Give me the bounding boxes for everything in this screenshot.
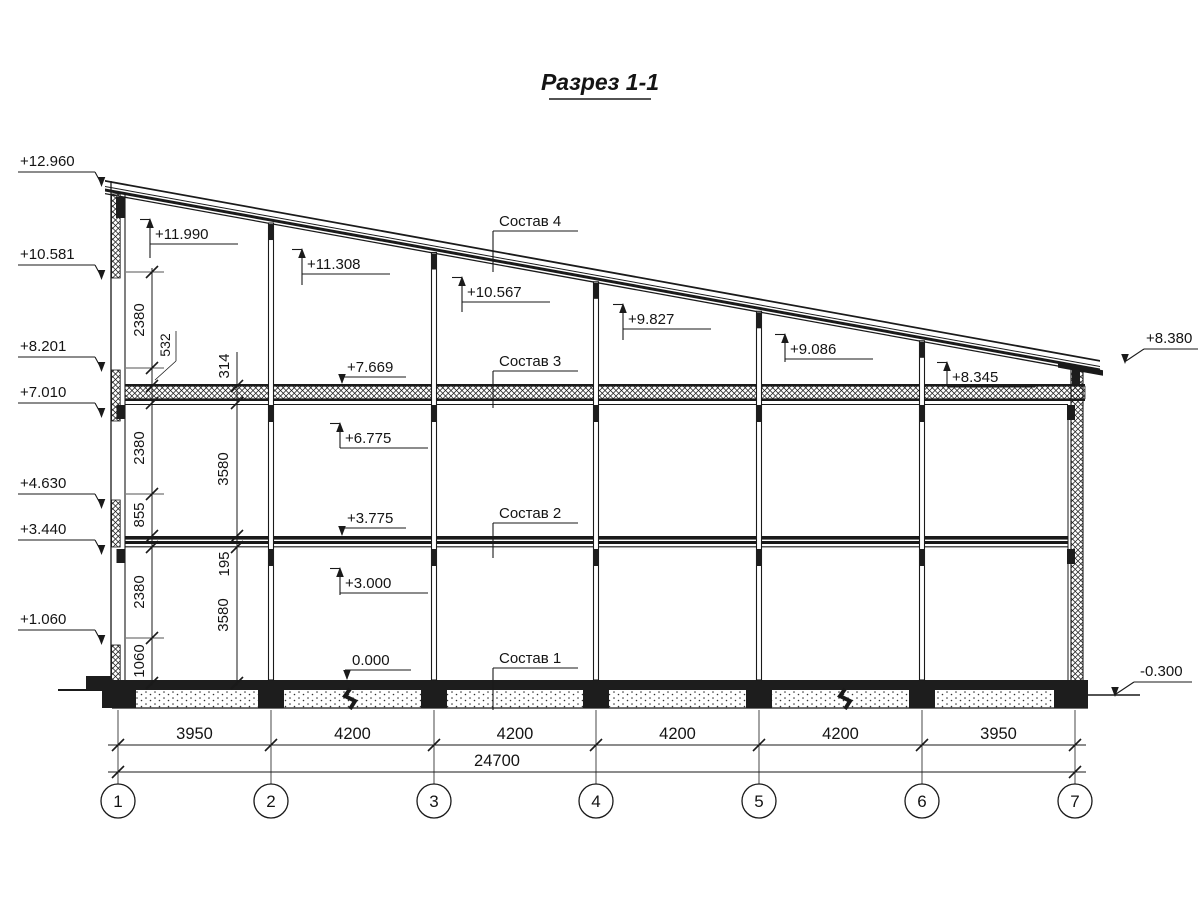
composition-label: Состав 3 [499, 353, 561, 370]
span-dim-value: 4200 [334, 725, 371, 743]
right-wall-connector [1067, 405, 1075, 420]
column-foundation-block [258, 690, 284, 708]
axis-number: 3 [429, 792, 438, 811]
column-foundation-block [909, 690, 935, 708]
column-roof-connector [919, 342, 925, 358]
elevation-value-left: +10.581 [20, 246, 75, 263]
vertical-dim-value: 195 [216, 551, 233, 576]
column-middle-floor-connector [268, 549, 274, 566]
span-dim-value: 4200 [659, 725, 696, 743]
foundation-left-wall [102, 690, 136, 708]
total-dim-value: 24700 [474, 752, 520, 770]
left-wall-hatch-segment [112, 500, 121, 547]
elevation-value-interior: +8.345 [952, 369, 998, 386]
axis-number: 7 [1070, 792, 1079, 811]
left-wall-cap-plate [116, 197, 125, 218]
elevation-value-left: +3.440 [20, 521, 66, 538]
column-middle-floor-connector [756, 549, 762, 566]
column-roof-connector [756, 312, 762, 328]
composition-label: Состав 1 [499, 650, 561, 667]
right-wall-connector [1067, 549, 1075, 564]
vertical-dim-value: 3580 [215, 598, 232, 631]
elevation-value-right: -0.300 [1140, 663, 1183, 680]
vertical-dim-value: 2380 [131, 575, 148, 608]
elevation-value-interior: +11.990 [155, 226, 209, 243]
column-roof-connector [431, 254, 437, 270]
column-middle-floor-connector [919, 549, 925, 566]
elevation-value-left: +12.960 [20, 153, 75, 170]
left-wall-connector [117, 405, 125, 419]
column-upper-floor-connector [756, 405, 762, 422]
column-foundation-block [421, 690, 447, 708]
column-roof-connector [268, 224, 274, 240]
axis-number: 6 [917, 792, 926, 811]
column-middle-floor-connector [431, 549, 437, 566]
left-apron-block [86, 676, 112, 690]
elevation-value-interior: +11.308 [307, 256, 361, 273]
page-title: Разрез 1-1 [541, 69, 659, 95]
column-roof-connector [593, 283, 599, 299]
elevation-value-interior: +6.775 [345, 430, 391, 447]
span-dim-value: 4200 [822, 725, 859, 743]
column-middle-floor-connector [593, 549, 599, 566]
column [432, 253, 437, 680]
axis-number: 2 [266, 792, 275, 811]
composition-label: Состав 4 [499, 213, 561, 230]
composition-label: Состав 2 [499, 505, 561, 522]
elevation-value-interior: +9.086 [790, 341, 836, 358]
column-foundation-block [746, 690, 772, 708]
vertical-dim-value: 2380 [131, 303, 148, 336]
elevation-value-left: +7.010 [20, 384, 66, 401]
column-upper-floor-connector [919, 405, 925, 422]
column-upper-floor-connector [431, 405, 437, 422]
slab-top-band [104, 680, 1088, 690]
column-upper-floor-connector [593, 405, 599, 422]
section-drawing: Разрез 1-1 [0, 0, 1200, 900]
paper-background [0, 0, 1200, 900]
left-wall-hatch-segment [112, 645, 121, 686]
elevation-value-left: +8.201 [20, 338, 66, 355]
axis-number: 1 [113, 792, 122, 811]
span-dim-value: 3950 [176, 725, 213, 743]
span-dim-value: 3950 [980, 725, 1017, 743]
elevation-value-right: +8.380 [1146, 330, 1192, 347]
elevation-value-left: +1.060 [20, 611, 66, 628]
vertical-dim-value: 314 [216, 353, 233, 378]
elevation-value-interior: 0.000 [352, 652, 390, 669]
vertical-dim-value: 3580 [215, 452, 232, 485]
vertical-dim-value: 532 [157, 333, 173, 357]
right-wall-connector [1072, 370, 1080, 386]
vertical-dim-value: 1060 [131, 644, 148, 677]
column-foundation-block [583, 690, 609, 708]
elevation-value-interior: +3.775 [347, 510, 393, 527]
elevation-value-interior: +9.827 [628, 311, 674, 328]
left-wall-connector [117, 549, 125, 563]
vertical-dim-value: 2380 [131, 431, 148, 464]
column [757, 311, 762, 680]
column-upper-floor-connector [268, 405, 274, 422]
vertical-dim-value: 855 [131, 502, 148, 527]
axis-number: 5 [754, 792, 763, 811]
elevation-value-interior: +3.000 [345, 575, 391, 592]
column [269, 223, 274, 680]
elevation-value-interior: +7.669 [347, 359, 393, 376]
column [594, 282, 599, 680]
axis-number: 4 [591, 792, 600, 811]
span-dim-value: 4200 [497, 725, 534, 743]
column [920, 341, 925, 680]
foundation-right-wall [1054, 688, 1088, 708]
elevation-value-left: +4.630 [20, 475, 66, 492]
elevation-value-interior: +10.567 [467, 284, 522, 301]
